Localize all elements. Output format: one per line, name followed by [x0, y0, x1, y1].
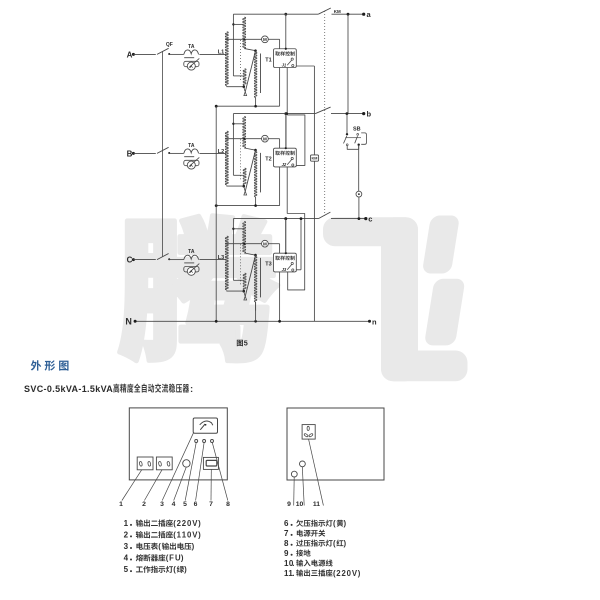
- svg-text:7: 7: [209, 501, 213, 508]
- svg-text:a: a: [367, 10, 372, 19]
- svg-text:3: 3: [160, 501, 164, 508]
- svg-text:10: 10: [296, 501, 304, 508]
- svg-text:): ): [198, 531, 201, 540]
- svg-text:SVC-0.5kVA-1.5kVA: SVC-0.5kVA-1.5kVA: [24, 384, 113, 394]
- svg-text:): ): [358, 569, 361, 578]
- svg-text:1: 1: [124, 519, 129, 528]
- svg-text:2: 2: [142, 501, 146, 508]
- svg-text:(: (: [333, 539, 336, 548]
- svg-text:): ): [344, 519, 347, 528]
- svg-text:L3: L3: [218, 255, 224, 261]
- svg-text:6: 6: [194, 501, 198, 508]
- svg-text:1: 1: [119, 501, 123, 508]
- svg-text:(: (: [173, 565, 176, 574]
- svg-text:6: 6: [284, 519, 289, 528]
- svg-text:5: 5: [183, 501, 187, 508]
- svg-text:11: 11: [313, 501, 320, 508]
- svg-text:4: 4: [172, 501, 176, 508]
- svg-text:F: F: [169, 554, 174, 563]
- svg-text:B: B: [127, 150, 133, 159]
- svg-text:TA: TA: [188, 143, 195, 149]
- svg-text:M: M: [263, 137, 267, 142]
- svg-text:M: M: [263, 37, 267, 42]
- svg-text:KM: KM: [334, 9, 341, 14]
- svg-text:J1: J1: [282, 63, 287, 68]
- svg-text:5: 5: [124, 565, 129, 574]
- svg-text::: :: [190, 384, 193, 395]
- svg-text:.: .: [292, 569, 294, 578]
- svg-text:4: 4: [124, 554, 129, 563]
- svg-text:QF: QF: [166, 42, 173, 48]
- svg-text:): ): [192, 542, 195, 551]
- svg-text:7: 7: [284, 529, 289, 538]
- svg-text:KM: KM: [312, 157, 318, 161]
- svg-text:2: 2: [124, 531, 129, 540]
- svg-text:A: A: [127, 51, 133, 60]
- svg-text:b: b: [367, 110, 372, 119]
- svg-text:(: (: [158, 542, 161, 551]
- svg-text:): ): [198, 519, 201, 528]
- svg-text:8: 8: [284, 539, 289, 548]
- svg-text:L1: L1: [218, 49, 224, 55]
- svg-text:TA: TA: [188, 44, 195, 50]
- svg-text:C: C: [127, 256, 133, 265]
- svg-text:(: (: [333, 519, 336, 528]
- svg-text:T2: T2: [265, 157, 271, 163]
- svg-text:SB: SB: [353, 127, 361, 133]
- svg-text:T3: T3: [265, 262, 271, 268]
- svg-text:n: n: [372, 317, 377, 326]
- svg-text:c: c: [368, 215, 372, 224]
- svg-text:): ): [344, 539, 347, 548]
- svg-text:8: 8: [226, 501, 230, 508]
- svg-text:): ): [181, 554, 184, 563]
- svg-text:5: 5: [244, 339, 248, 348]
- svg-text:T1: T1: [265, 57, 271, 63]
- svg-text:J3: J3: [282, 267, 287, 272]
- svg-text:3: 3: [124, 542, 129, 551]
- svg-text:): ): [184, 565, 187, 574]
- svg-text:J2: J2: [282, 162, 287, 167]
- svg-text:9: 9: [284, 549, 289, 558]
- svg-text:TA: TA: [188, 249, 195, 255]
- svg-text:M: M: [263, 242, 267, 247]
- svg-text:9: 9: [287, 501, 291, 508]
- svg-text:N: N: [125, 317, 131, 327]
- svg-text:L2: L2: [218, 149, 224, 155]
- svg-text:.: .: [292, 559, 294, 568]
